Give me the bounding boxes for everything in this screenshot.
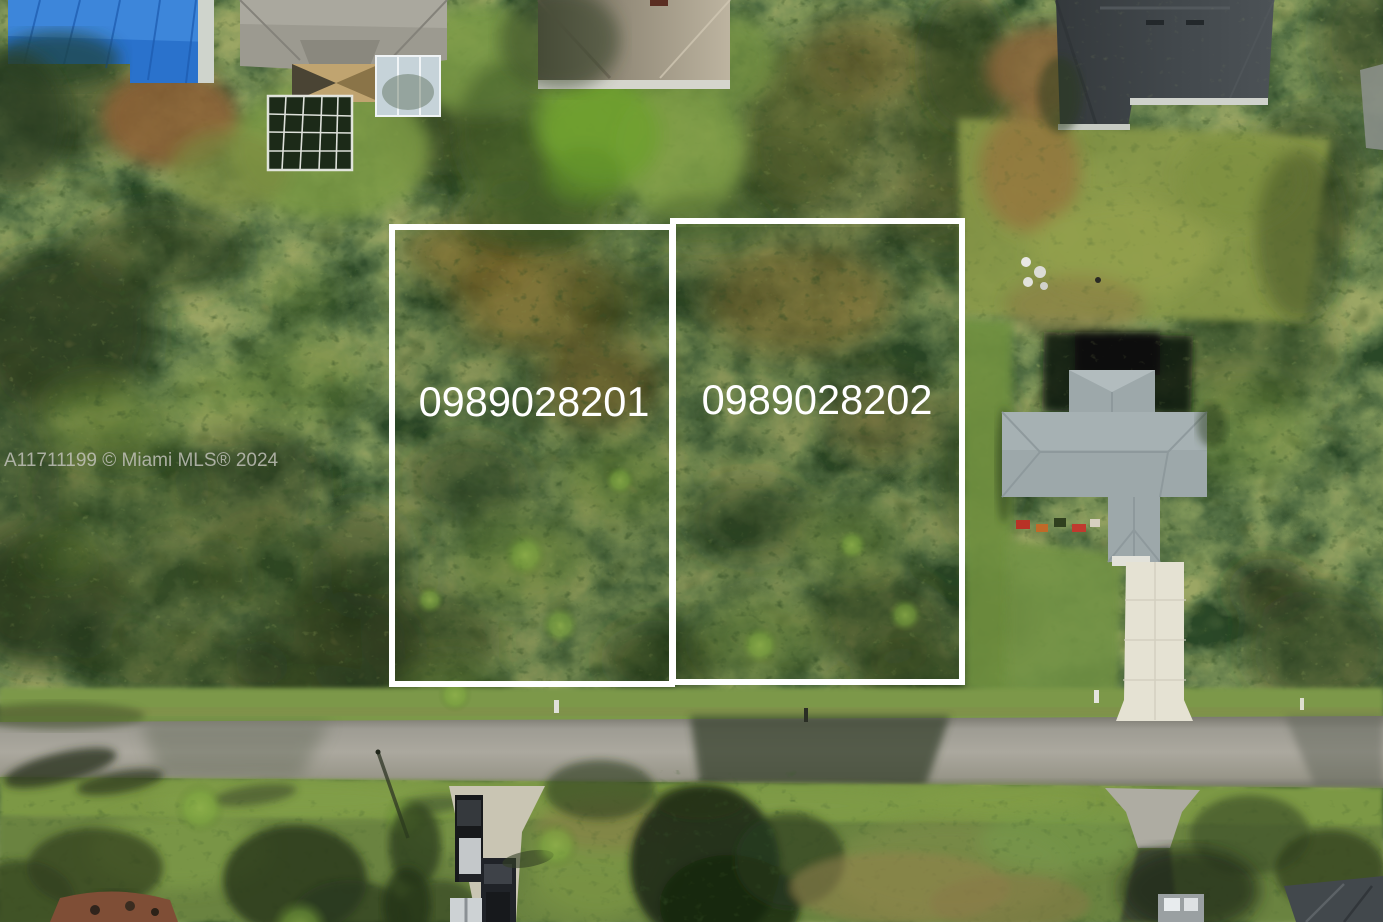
svg-text:A11711199 © Miami MLS® 2024: A11711199 © Miami MLS® 2024 (4, 450, 279, 471)
svg-text:0989028202: 0989028202 (702, 376, 933, 423)
svg-text:0989028201: 0989028201 (419, 378, 650, 425)
